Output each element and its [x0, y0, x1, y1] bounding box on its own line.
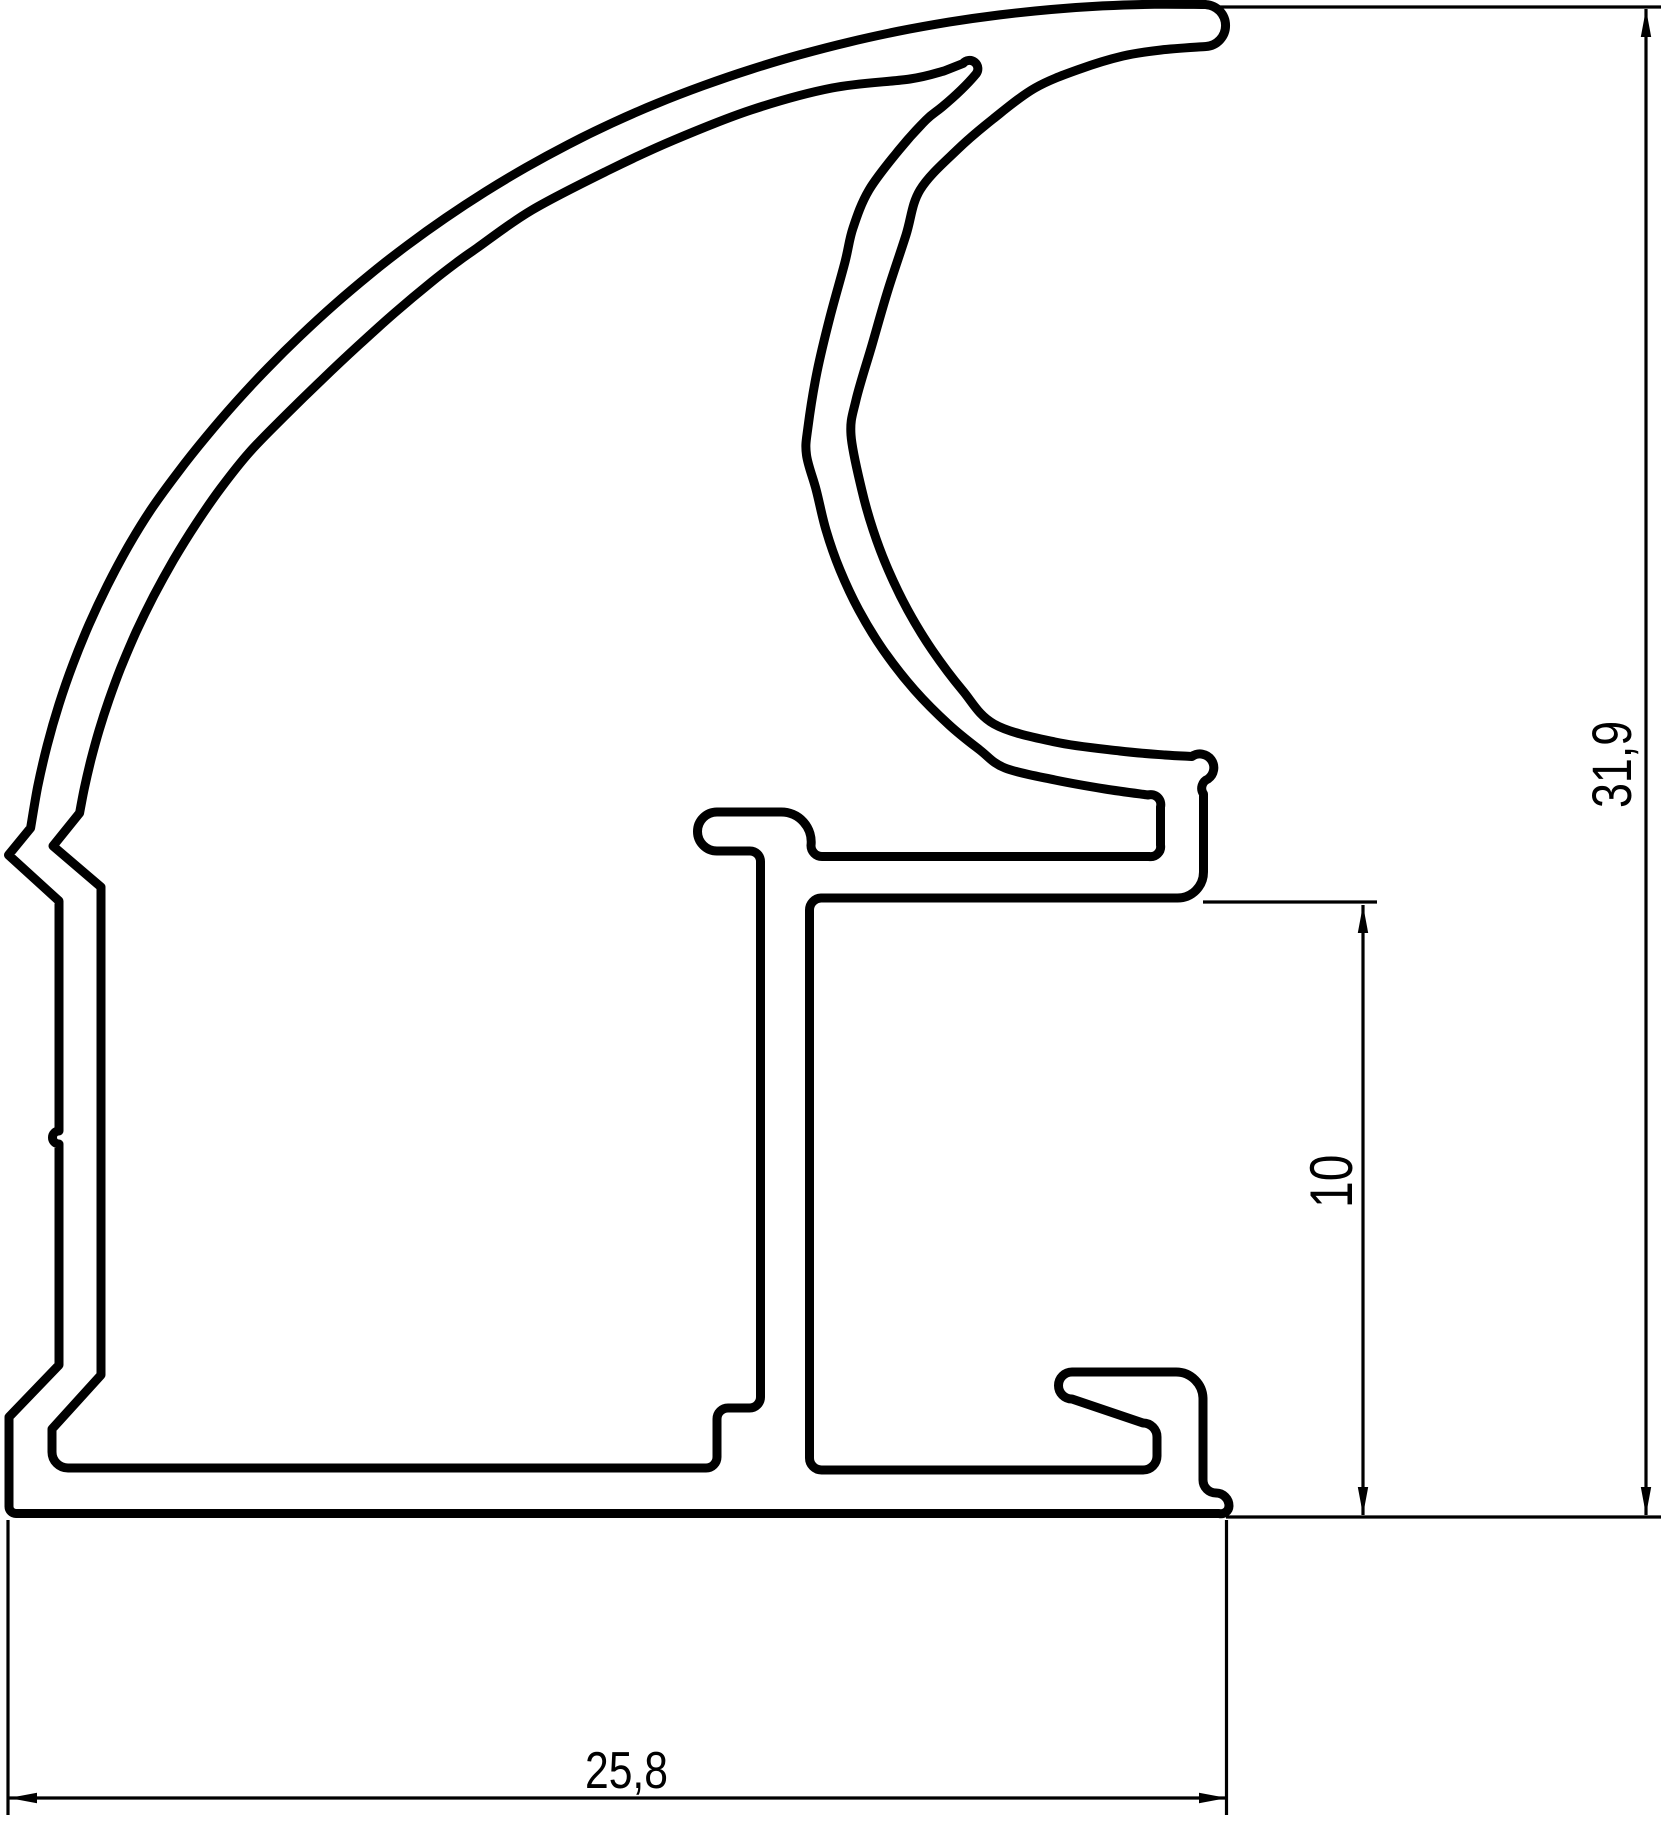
svg-text:25,8: 25,8: [585, 1742, 668, 1800]
svg-text:10: 10: [1298, 1155, 1365, 1208]
svg-text:31,9: 31,9: [1580, 721, 1643, 808]
